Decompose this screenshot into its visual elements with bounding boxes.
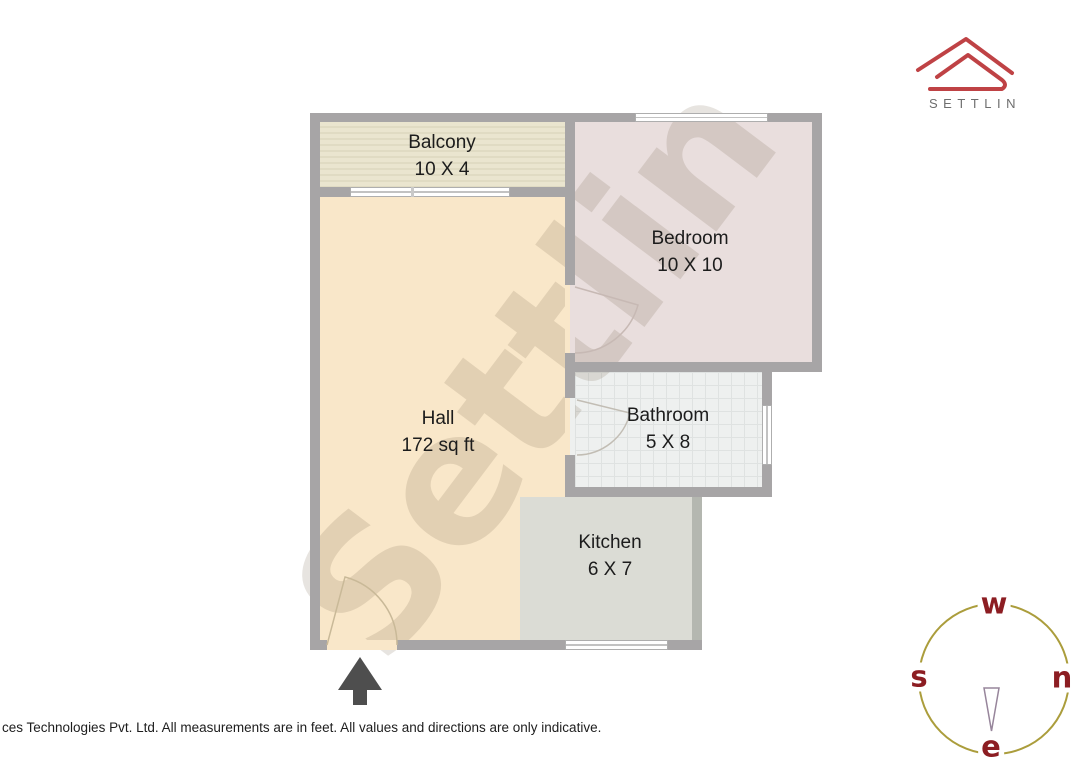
- wall-kitchen-right: [692, 497, 702, 650]
- balcony-label: Balcony 10 X 4: [408, 130, 476, 184]
- bedroom-name: Bedroom: [651, 226, 728, 253]
- hall-dims: 172 sq ft: [402, 433, 475, 460]
- compass-letter-w: w: [978, 590, 1011, 619]
- bathroom-door-opening: [565, 398, 575, 455]
- bathroom-label: Bathroom 5 X 8: [627, 403, 709, 457]
- footer-disclaimer: ces Technologies Pvt. Ltd. All measureme…: [2, 720, 601, 735]
- kitchen-dims: 6 X 7: [578, 557, 641, 584]
- wall-bathroom-bottom: [565, 487, 772, 497]
- hall-floor-lower: [320, 497, 520, 640]
- entrance-door-opening: [327, 640, 397, 650]
- balcony-name: Balcony: [408, 130, 476, 157]
- entrance-arrow-icon: [336, 655, 384, 707]
- balcony-window: [350, 187, 510, 197]
- bathroom-dims: 5 X 8: [627, 430, 709, 457]
- bathroom-window: [762, 405, 772, 465]
- bedroom-door-opening: [565, 285, 575, 353]
- compass-letter-n: n: [1049, 664, 1076, 693]
- bedroom-label: Bedroom 10 X 10: [651, 226, 728, 280]
- compass-letter-e: e: [978, 733, 1004, 762]
- floor-plan: Settlin Balcony 10 X 4 Bedroom 10 X 10 H…: [310, 113, 822, 650]
- wall-bedroom-bottom: [565, 362, 822, 372]
- wall-bedroom-right: [812, 113, 822, 372]
- bathroom-name: Bathroom: [627, 403, 709, 430]
- compass-letter-s: s: [907, 663, 930, 692]
- balcony-window-divider: [411, 187, 414, 197]
- kitchen-label: Kitchen 6 X 7: [578, 530, 641, 584]
- compass-needle: [984, 688, 999, 731]
- kitchen-window: [565, 640, 668, 650]
- settlin-roof-icon: [905, 30, 1025, 98]
- hall-name: Hall: [402, 406, 475, 433]
- bedroom-window: [635, 113, 768, 122]
- balcony-dims: 10 X 4: [408, 157, 476, 184]
- hall-label: Hall 172 sq ft: [402, 406, 475, 460]
- logo-text: SETTLIN: [929, 96, 1021, 111]
- bedroom-dims: 10 X 10: [651, 253, 728, 280]
- kitchen-name: Kitchen: [578, 530, 641, 557]
